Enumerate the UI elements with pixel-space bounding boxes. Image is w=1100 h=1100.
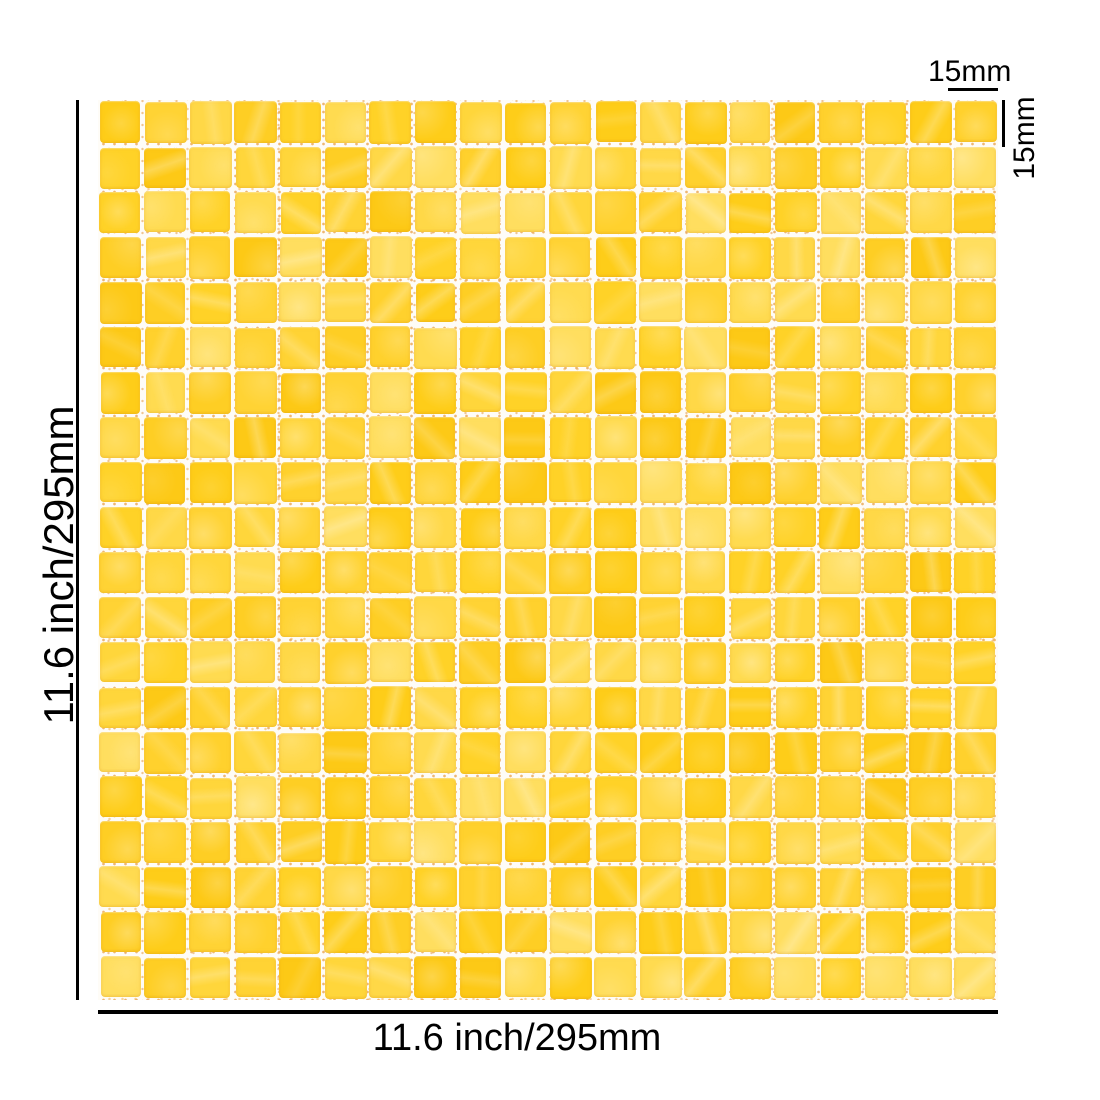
mosaic-tile (370, 147, 412, 188)
mosaic-tile (775, 192, 817, 232)
mosaic-cell (953, 955, 998, 1000)
mosaic-cell (98, 145, 143, 190)
mosaic-tile (821, 282, 861, 323)
mosaic-cell (773, 505, 818, 550)
mosaic-tile (685, 778, 726, 819)
mosaic-tile (279, 507, 320, 548)
mosaic-cell (773, 775, 818, 820)
mosaic-tile (370, 191, 410, 232)
sheet-width-dimension-line (98, 1010, 998, 1014)
mosaic-cell (368, 550, 413, 595)
mosaic-cell (143, 190, 188, 235)
mosaic-tile (639, 326, 681, 367)
mosaic-tile (640, 822, 681, 862)
mosaic-tile (100, 237, 141, 279)
mosaic-cell (863, 775, 908, 820)
mosaic-tile (685, 507, 726, 548)
mosaic-tile (865, 192, 906, 234)
mosaic-tile (99, 552, 140, 593)
mosaic-tile (324, 687, 366, 728)
tile-width-dimension-line (948, 88, 998, 91)
mosaic-cell (233, 820, 278, 865)
mosaic-tile (954, 147, 995, 188)
mosaic-tile (144, 417, 186, 458)
mosaic-tile (639, 687, 681, 727)
mosaic-cell (818, 235, 863, 280)
mosaic-tile (775, 776, 816, 818)
mosaic-cell (818, 190, 863, 235)
mosaic-tile (955, 373, 996, 414)
mosaic-tile (596, 101, 636, 142)
mosaic-cell (188, 505, 233, 550)
mosaic-tile (956, 597, 997, 638)
mosaic-tile (684, 732, 725, 773)
mosaic-tile (550, 731, 590, 773)
mosaic-cell (593, 775, 638, 820)
mosaic-cell (413, 865, 458, 910)
mosaic-cell (818, 955, 863, 1000)
mosaic-tile (279, 733, 321, 773)
mosaic-tile (415, 101, 456, 143)
mosaic-tile (506, 686, 547, 727)
mosaic-tile (774, 237, 815, 279)
mosaic-tile (819, 597, 860, 637)
mosaic-tile (730, 462, 771, 503)
mosaic-tile (550, 957, 592, 999)
mosaic-tile (731, 598, 772, 639)
mosaic-tile (729, 551, 771, 592)
mosaic-cell (773, 145, 818, 190)
mosaic-cell (278, 640, 323, 685)
mosaic-cell (548, 325, 593, 370)
mosaic-tile (866, 911, 906, 952)
mosaic-tile (414, 821, 455, 863)
mosaic-tile (235, 328, 276, 369)
mosaic-tile (460, 372, 501, 412)
mosaic-cell (503, 145, 548, 190)
mosaic-cell (233, 370, 278, 415)
mosaic-cell (818, 415, 863, 460)
mosaic-tile (280, 552, 321, 593)
mosaic-cell (458, 235, 503, 280)
mosaic-tile (729, 193, 771, 233)
mosaic-cell (818, 370, 863, 415)
mosaic-cell (233, 640, 278, 685)
mosaic-cell (818, 685, 863, 730)
mosaic-tile (820, 642, 861, 682)
mosaic-cell (458, 955, 503, 1000)
mosaic-cell (458, 910, 503, 955)
mosaic-cell (143, 370, 188, 415)
mosaic-tile (459, 821, 502, 864)
mosaic-tile (100, 462, 142, 503)
mosaic-cell (953, 505, 998, 550)
mosaic-cell (368, 190, 413, 235)
mosaic-tile (955, 101, 996, 142)
mosaic-cell (593, 100, 638, 145)
mosaic-cell (368, 505, 413, 550)
mosaic-tile (325, 642, 367, 684)
mosaic-cell (593, 820, 638, 865)
mosaic-cell (863, 145, 908, 190)
mosaic-tile (774, 507, 816, 547)
mosaic-cell (953, 865, 998, 910)
mosaic-cell (728, 775, 773, 820)
mosaic-cell (233, 910, 278, 955)
tile-width-dimension-label: 15mm (928, 55, 1011, 89)
mosaic-cell (143, 280, 188, 325)
mosaic-cell (908, 100, 953, 145)
mosaic-cell (503, 415, 548, 460)
mosaic-cell (233, 550, 278, 595)
mosaic-cell (953, 595, 998, 640)
mosaic-cell (638, 820, 683, 865)
mosaic-cell (98, 550, 143, 595)
mosaic-tile (955, 777, 995, 818)
mosaic-cell (548, 910, 593, 955)
mosaic-tile (684, 912, 726, 954)
mosaic-cell (368, 865, 413, 910)
mosaic-tile (954, 193, 995, 233)
mosaic-cell (593, 505, 638, 550)
mosaic-cell (638, 100, 683, 145)
mosaic-tile (460, 282, 501, 323)
mosaic-tile (236, 776, 276, 818)
mosaic-tile (369, 822, 410, 862)
mosaic-tile (865, 597, 906, 637)
mosaic-cell (548, 775, 593, 820)
mosaic-tile (776, 687, 817, 728)
mosaic-cell (188, 460, 233, 505)
mosaic-tile (955, 417, 997, 459)
mosaic-cell (638, 910, 683, 955)
mosaic-tile (505, 642, 546, 683)
mosaic-tile (369, 957, 411, 999)
mosaic-tile (190, 687, 230, 728)
mosaic-cell (863, 685, 908, 730)
mosaic-tile (505, 913, 547, 953)
mosaic-tile (235, 192, 276, 234)
mosaic-cell (503, 775, 548, 820)
mosaic-tile (504, 462, 546, 503)
mosaic-cell (728, 730, 773, 775)
mosaic-cell (773, 685, 818, 730)
mosaic-cell (683, 415, 728, 460)
mosaic-tile (236, 957, 277, 997)
mosaic-cell (953, 370, 998, 415)
mosaic-tile (100, 327, 141, 368)
mosaic-tile (370, 236, 412, 278)
mosaic-cell (683, 460, 728, 505)
mosaic-cell (413, 730, 458, 775)
mosaic-cell (638, 235, 683, 280)
mosaic-cell (908, 280, 953, 325)
mosaic-cell (278, 685, 323, 730)
mosaic-cell (98, 595, 143, 640)
mosaic-cell (188, 820, 233, 865)
mosaic-cell (458, 730, 503, 775)
mosaic-tile (370, 282, 411, 323)
mosaic-tile (234, 417, 276, 458)
mosaic-cell (323, 325, 368, 370)
mosaic-cell (233, 730, 278, 775)
mosaic-cell (953, 325, 998, 370)
mosaic-tile (730, 911, 772, 953)
mosaic-cell (728, 460, 773, 505)
mosaic-cell (278, 910, 323, 955)
mosaic-cell (98, 640, 143, 685)
mosaic-cell (278, 235, 323, 280)
mosaic-cell (458, 640, 503, 685)
mosaic-tile (505, 327, 545, 368)
mosaic-tile (775, 282, 816, 323)
mosaic-cell (548, 820, 593, 865)
mosaic-tile (190, 778, 232, 819)
mosaic-tile (594, 508, 635, 548)
mosaic-tile (910, 552, 951, 593)
mosaic-cell (683, 775, 728, 820)
mosaic-tile (459, 641, 500, 684)
mosaic-tile (551, 867, 591, 908)
mosaic-tile (236, 147, 276, 188)
mosaic-cell (458, 460, 503, 505)
mosaic-cell (683, 685, 728, 730)
mosaic-tile (549, 462, 590, 502)
mosaic-tile (325, 147, 366, 188)
mosaic-cell (728, 235, 773, 280)
mosaic-cell (413, 280, 458, 325)
mosaic-tile (504, 417, 545, 457)
mosaic-tile (415, 912, 456, 952)
mosaic-tile (685, 147, 727, 188)
mosaic-cell (98, 280, 143, 325)
mosaic-tile (595, 372, 636, 414)
mosaic-cell (773, 910, 818, 955)
mosaic-cell (368, 325, 413, 370)
mosaic-cell (773, 190, 818, 235)
mosaic-tile (325, 282, 366, 322)
mosaic-tile (594, 957, 636, 997)
mosaic-cell (728, 190, 773, 235)
mosaic-tile (325, 192, 366, 233)
mosaic-cell (548, 955, 593, 1000)
mosaic-cell (188, 325, 233, 370)
mosaic-cell (548, 235, 593, 280)
mosaic-grid (98, 100, 998, 1000)
mosaic-tile (686, 463, 727, 504)
mosaic-tile (235, 371, 277, 414)
mosaic-tile (775, 147, 817, 189)
mosaic-tile (370, 598, 412, 639)
mosaic-tile (640, 102, 680, 143)
mosaic-cell (323, 820, 368, 865)
mosaic-tile (821, 958, 862, 999)
mosaic-cell (188, 145, 233, 190)
mosaic-tile (730, 282, 771, 323)
mosaic-tile (324, 911, 366, 952)
mosaic-tile (954, 552, 995, 593)
mosaic-tile (99, 192, 140, 233)
mosaic-cell (98, 325, 143, 370)
mosaic-tile (820, 237, 860, 278)
mosaic-cell (863, 550, 908, 595)
mosaic-cell (728, 865, 773, 910)
mosaic-cell (188, 235, 233, 280)
mosaic-cell (908, 730, 953, 775)
mosaic-cell (773, 595, 818, 640)
mosaic-tile (684, 327, 727, 369)
mosaic-tile (505, 103, 546, 144)
mosaic-cell (548, 100, 593, 145)
mosaic-tile (729, 821, 770, 863)
mosaic-tile (955, 507, 996, 548)
mosaic-tile (144, 463, 185, 504)
mosaic-cell (908, 235, 953, 280)
mosaic-cell (503, 685, 548, 730)
mosaic-tile (101, 956, 141, 997)
mosaic-cell (98, 370, 143, 415)
mosaic-cell (458, 100, 503, 145)
mosaic-tile (910, 867, 951, 908)
mosaic-cell (143, 820, 188, 865)
mosaic-cell (683, 370, 728, 415)
mosaic-tile (820, 822, 861, 864)
mosaic-cell (233, 415, 278, 460)
mosaic-tile (639, 912, 681, 953)
mosaic-cell (188, 955, 233, 1000)
mosaic-cell (908, 505, 953, 550)
mosaic-tile (190, 191, 231, 232)
mosaic-cell (98, 820, 143, 865)
mosaic-cell (323, 730, 368, 775)
mosaic-cell (773, 100, 818, 145)
mosaic-cell (143, 235, 188, 280)
mosaic-cell (233, 325, 278, 370)
mosaic-cell (638, 325, 683, 370)
mosaic-tile (235, 596, 276, 638)
mosaic-tile (280, 418, 321, 459)
mosaic-tile (325, 551, 367, 593)
mosaic-cell (908, 370, 953, 415)
mosaic-tile (279, 687, 320, 727)
mosaic-cell (188, 775, 233, 820)
mosaic-tile (279, 957, 321, 997)
mosaic-tile (684, 596, 725, 637)
mosaic-cell (413, 325, 458, 370)
mosaic-cell (593, 595, 638, 640)
mosaic-cell (908, 775, 953, 820)
mosaic-tile (144, 732, 186, 774)
mosaic-tile (415, 146, 456, 187)
mosaic-tile (594, 281, 636, 323)
mosaic-cell (323, 955, 368, 1000)
mosaic-tile (505, 868, 546, 908)
mosaic-tile (234, 237, 277, 277)
mosaic-tile (820, 552, 861, 594)
mosaic-tile (189, 147, 232, 188)
mosaic-tile (729, 732, 770, 773)
mosaic-cell (863, 595, 908, 640)
mosaic-cell (413, 595, 458, 640)
mosaic-cell (458, 370, 503, 415)
mosaic-cell (278, 955, 323, 1000)
mosaic-cell (548, 460, 593, 505)
mosaic-cell (503, 280, 548, 325)
mosaic-tile (550, 641, 590, 682)
mosaic-cell (773, 325, 818, 370)
mosaic-cell (863, 415, 908, 460)
mosaic-cell (863, 235, 908, 280)
mosaic-cell (323, 100, 368, 145)
mosaic-cell (188, 370, 233, 415)
mosaic-cell (143, 460, 188, 505)
mosaic-tile (190, 732, 231, 773)
mosaic-cell (683, 730, 728, 775)
mosaic-cell (413, 460, 458, 505)
mosaic-tile (865, 282, 905, 323)
mosaic-cell (98, 730, 143, 775)
mosaic-cell (98, 100, 143, 145)
mosaic-tile (596, 822, 636, 862)
mosaic-cell (368, 595, 413, 640)
mosaic-tile (101, 372, 140, 414)
mosaic-cell (143, 910, 188, 955)
mosaic-tile (954, 327, 996, 369)
mosaic-cell (233, 145, 278, 190)
mosaic-cell (323, 550, 368, 595)
mosaic-tile (189, 372, 230, 414)
mosaic-tile (865, 238, 905, 279)
mosaic-tile (144, 686, 186, 727)
mosaic-tile (729, 237, 771, 279)
mosaic-cell (503, 550, 548, 595)
mosaic-cell (368, 685, 413, 730)
mosaic-tile (281, 373, 321, 413)
mosaic-cell (413, 370, 458, 415)
mosaic-cell (638, 280, 683, 325)
mosaic-cell (323, 145, 368, 190)
mosaic-cell (908, 640, 953, 685)
mosaic-cell (368, 820, 413, 865)
mosaic-cell (773, 280, 818, 325)
mosaic-cell (683, 820, 728, 865)
mosaic-tile (99, 732, 140, 773)
mosaic-tile (819, 507, 860, 549)
mosaic-tile (954, 641, 995, 683)
mosaic-cell (683, 325, 728, 370)
mosaic-tile (416, 283, 456, 323)
mosaic-tile (550, 596, 591, 637)
mosaic-tile (550, 417, 591, 459)
mosaic-tile (775, 732, 817, 774)
mosaic-cell (683, 910, 728, 955)
mosaic-tile (685, 688, 726, 729)
mosaic-cell (98, 910, 143, 955)
mosaic-cell (323, 865, 368, 910)
mosaic-tile (415, 687, 456, 728)
mosaic-cell (638, 595, 683, 640)
mosaic-cell (683, 190, 728, 235)
mosaic-cell (368, 640, 413, 685)
mosaic-cell (818, 865, 863, 910)
mosaic-tile (280, 102, 322, 143)
mosaic-cell (818, 820, 863, 865)
mosaic-tile (235, 641, 275, 683)
mosaic-cell (908, 865, 953, 910)
mosaic-tile (549, 192, 592, 233)
mosaic-tile (686, 867, 727, 907)
mosaic-tile (686, 418, 727, 459)
